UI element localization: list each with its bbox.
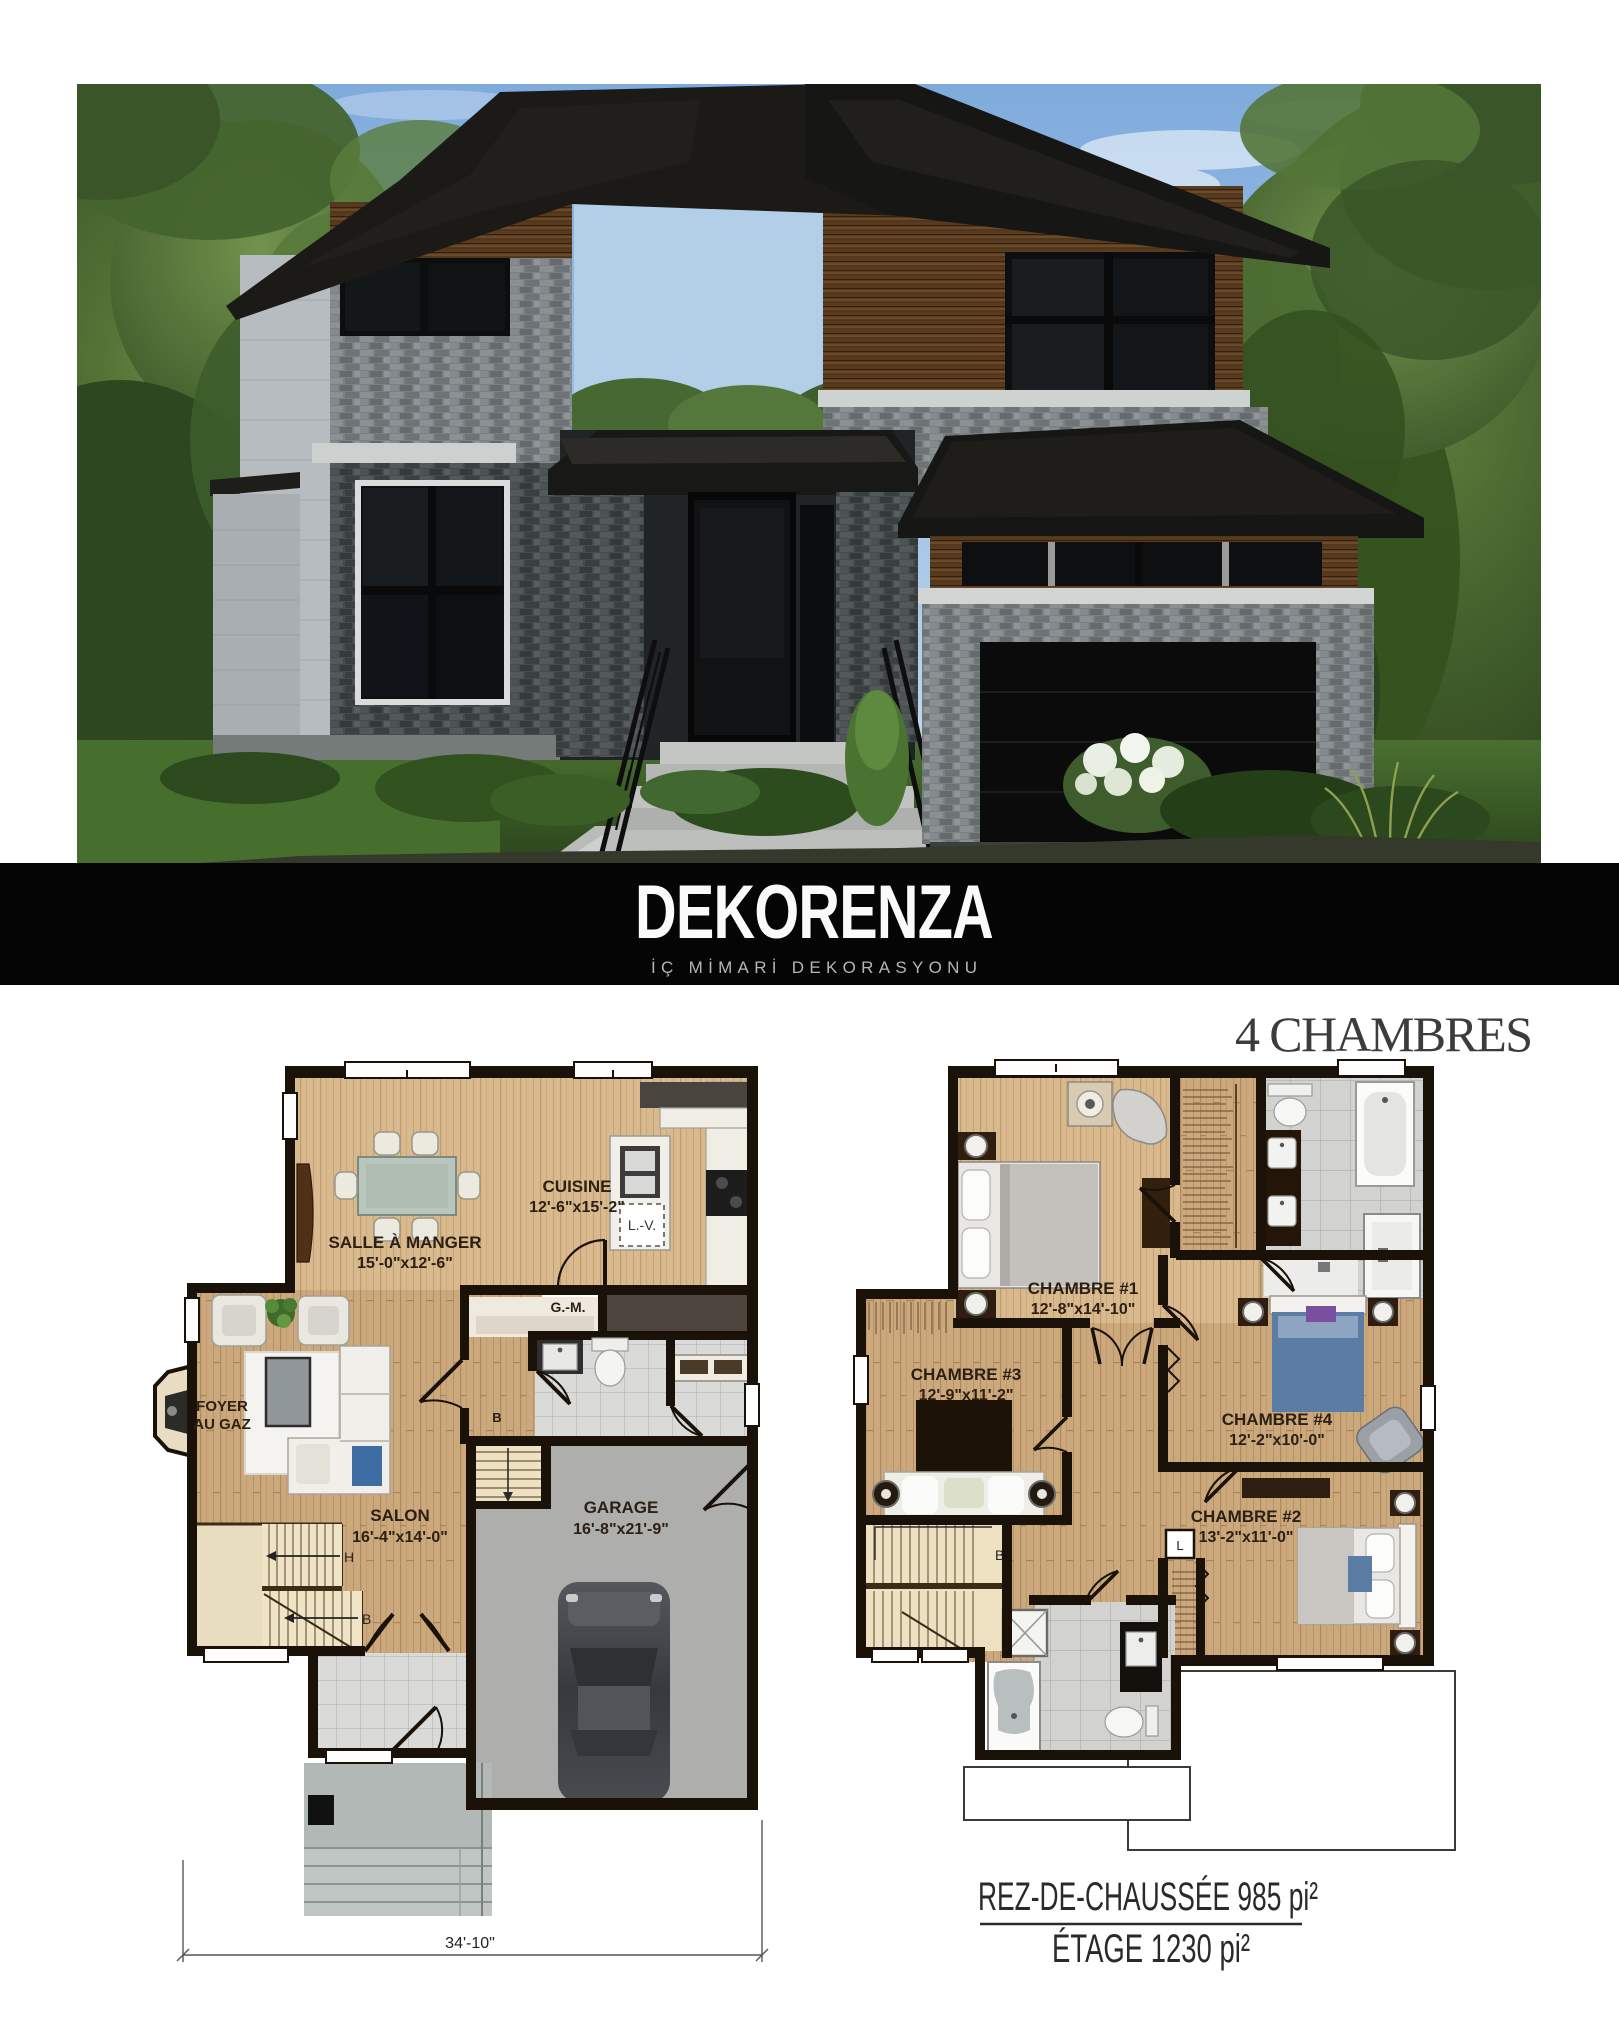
svg-text:İÇ MİMARİ DEKORASYONU: İÇ MİMARİ DEKORASYONU [651, 958, 977, 977]
svg-text:34'-10": 34'-10" [445, 1935, 495, 1952]
svg-text:SALLE À MANGER: SALLE À MANGER [329, 1233, 482, 1252]
svg-text:H: H [344, 1549, 354, 1565]
svg-text:DEKORENZA: DEKORENZA [635, 870, 993, 955]
svg-text:CUISINE: CUISINE [543, 1177, 612, 1196]
svg-text:CHAMBRE #1: CHAMBRE #1 [1028, 1279, 1139, 1298]
svg-text:CHAMBRE #3: CHAMBRE #3 [911, 1365, 1022, 1384]
svg-text:AU GAZ: AU GAZ [193, 1416, 251, 1433]
svg-text:CHAMBRE #2: CHAMBRE #2 [1191, 1507, 1302, 1526]
svg-text:SALON: SALON [370, 1506, 430, 1525]
svg-text:L.-V.: L.-V. [628, 1217, 656, 1233]
svg-text:ÉTAGE 1230 pi²: ÉTAGE 1230 pi² [1052, 1926, 1250, 1971]
svg-text:15'-0"x12'-6": 15'-0"x12'-6" [357, 1255, 453, 1272]
svg-text:REZ-DE-CHAUSSÉE 985 pi²: REZ-DE-CHAUSSÉE 985 pi² [978, 1874, 1318, 1919]
svg-text:13'-2"x11'-0": 13'-2"x11'-0" [1199, 1529, 1294, 1546]
svg-text:4 CHAMBRES: 4 CHAMBRES [1235, 1006, 1533, 1062]
svg-text:12'-8"x14'-10": 12'-8"x14'-10" [1031, 1301, 1136, 1318]
svg-text:FOYER: FOYER [196, 1398, 248, 1415]
svg-text:L: L [1176, 1538, 1183, 1553]
svg-text:GARAGE: GARAGE [584, 1498, 659, 1517]
svg-text:12'-2"x10'-0": 12'-2"x10'-0" [1229, 1432, 1325, 1449]
svg-text:G.-M.: G.-M. [551, 1299, 586, 1315]
svg-text:B: B [362, 1611, 371, 1627]
svg-text:CHAMBRE #4: CHAMBRE #4 [1222, 1410, 1333, 1429]
svg-text:B: B [492, 1410, 501, 1425]
svg-text:16'-4"x14'-0": 16'-4"x14'-0" [352, 1529, 448, 1546]
svg-text:12'-6"x15'-2": 12'-6"x15'-2" [529, 1199, 625, 1216]
svg-text:16'-8"x21'-9": 16'-8"x21'-9" [573, 1521, 669, 1538]
svg-text:12'-9"x11'-2": 12'-9"x11'-2" [919, 1387, 1014, 1404]
